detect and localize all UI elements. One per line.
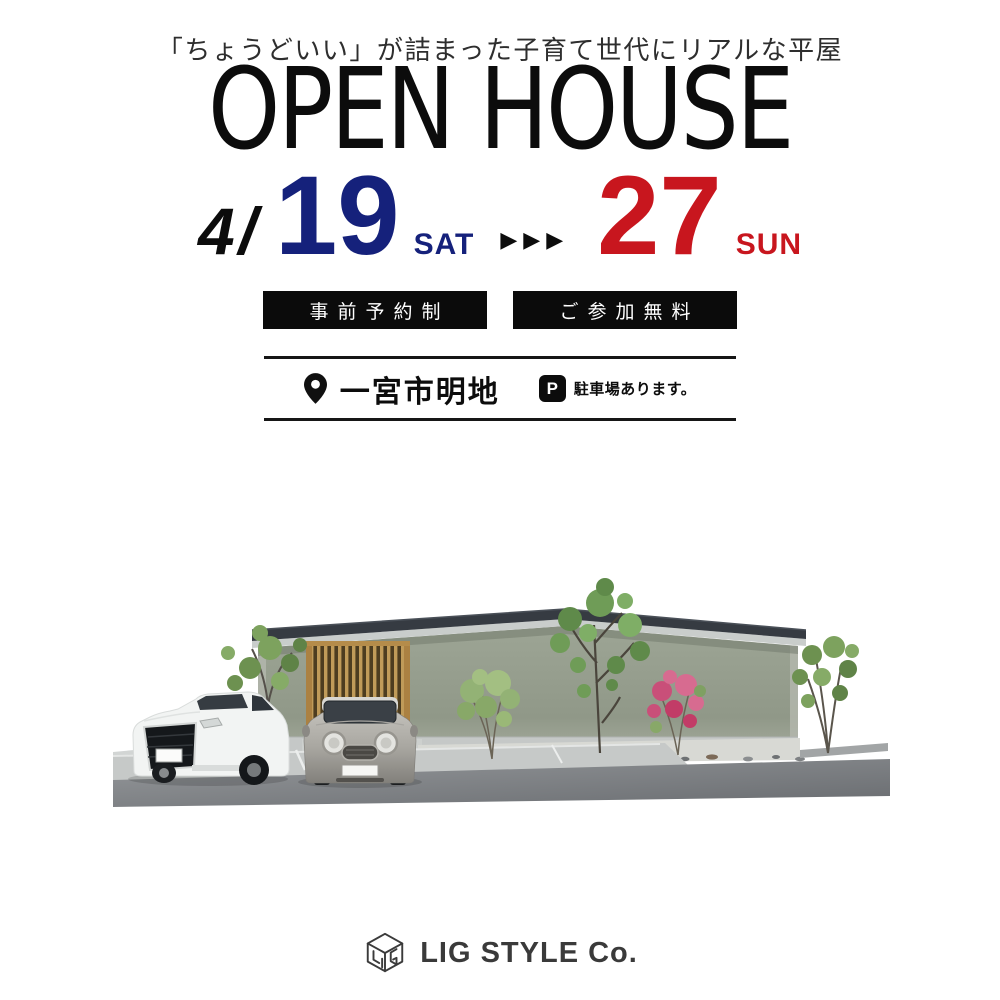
location-bar: 一宮市明地 P 駐車場あります。 (264, 356, 736, 421)
company-name: LIG STYLE Co. (420, 937, 638, 970)
end-day: 27 (597, 160, 722, 272)
start-weekday: SAT (414, 230, 475, 260)
mini-grille (342, 745, 378, 760)
date-range: 4 / 19 SAT ▶▶▶ 27 SUN (0, 160, 1000, 272)
tree-right (792, 636, 859, 753)
parking-icon: P (539, 375, 566, 402)
page-title: OPEN HOUSE (90, 54, 910, 166)
end-weekday: SUN (736, 230, 802, 260)
location-text: 一宮市明地 (340, 367, 500, 411)
mini-windshield (324, 701, 396, 723)
badge-row: 事前予約制 ご参加無料 (0, 291, 1000, 329)
white-suv (128, 692, 289, 786)
parking-info: P 駐車場あります。 (539, 375, 697, 402)
month: 4 (198, 198, 235, 264)
house-illustration (100, 573, 900, 813)
flyer-page: 「ちょうどいい」が詰まった子育て世代にリアルな平屋 OPEN HOUSE 4 /… (0, 0, 1000, 1000)
map-pin-icon (304, 373, 327, 404)
cube-logo-icon (362, 930, 408, 976)
footer-logo: LIG STYLE Co. (0, 930, 1000, 976)
date-separator: / (239, 198, 257, 264)
start-day: 19 (275, 160, 400, 272)
arrows-icon: ▶▶▶ (500, 229, 569, 251)
suv-license-plate (156, 749, 182, 762)
badge-free: ご参加無料 (513, 291, 737, 329)
mini-license-plate (342, 765, 378, 776)
right-curb (800, 743, 888, 758)
parking-note: 駐車場あります。 (574, 378, 697, 399)
badge-reservation: 事前予約制 (263, 291, 487, 329)
